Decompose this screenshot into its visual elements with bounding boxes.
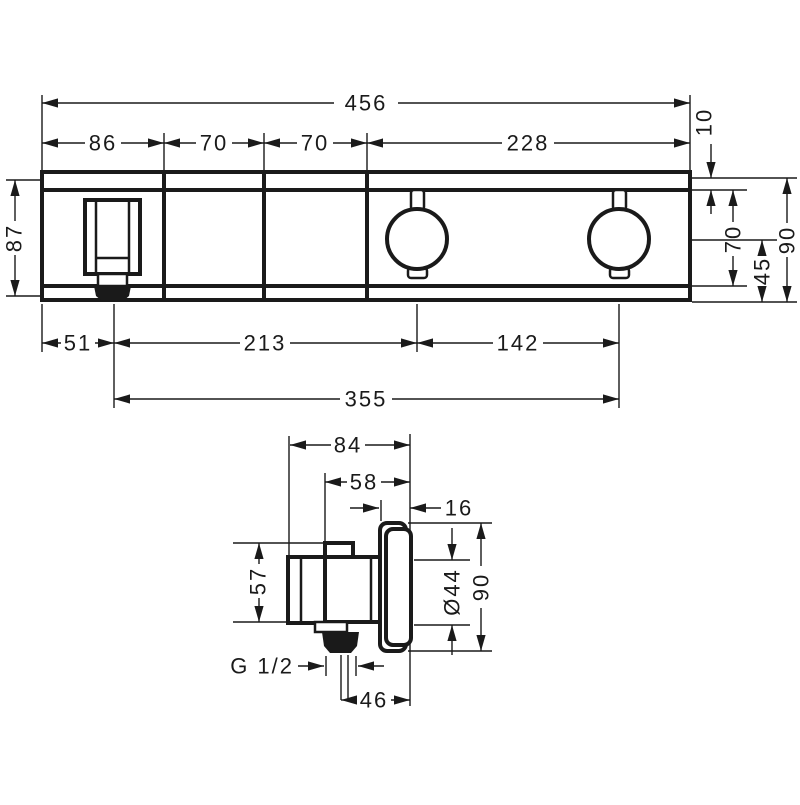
dim-segment-holder: 86 xyxy=(89,131,117,156)
dim-top-edge-offset: 10 xyxy=(692,108,717,136)
dim-knob-diameter: Ø44 xyxy=(440,568,465,616)
dim-segment-gap2: 70 xyxy=(301,131,329,156)
holder-outlet-nut xyxy=(94,286,131,301)
dim-total-width: 456 xyxy=(345,91,388,116)
dim-holder-to-knob1: 213 xyxy=(244,331,287,356)
spec-sheet-page: 456 86 70 70 228 10 87 70 45 90 51 213 1… xyxy=(0,0,800,800)
dim-plate-height: 90 xyxy=(469,573,494,601)
dim-edge-to-holder: 51 xyxy=(64,331,92,356)
dim-segment-gap1: 70 xyxy=(200,131,228,156)
dim-outlet-to-front: 46 xyxy=(360,688,388,713)
dim-total-depth: 84 xyxy=(334,433,362,458)
side-view: 84 58 16 57 Ø44 90 G 1/2 46 xyxy=(230,433,493,713)
dim-body-height-left: 87 xyxy=(2,224,27,252)
label-thread-size: G 1/2 xyxy=(230,654,294,679)
thread-connector-nut xyxy=(322,632,359,653)
dim-plate-depth: 16 xyxy=(445,496,473,521)
side-body-profile xyxy=(288,543,380,653)
technical-drawing: 456 86 70 70 228 10 87 70 45 90 51 213 1… xyxy=(0,0,800,800)
dim-holder-to-knob2-total: 355 xyxy=(345,387,388,412)
dim-body-depth: 58 xyxy=(350,470,378,495)
dim-segment-knobs: 228 xyxy=(507,131,550,156)
dim-half-height: 45 xyxy=(750,257,775,285)
escutcheon-plates xyxy=(380,523,411,651)
front-view: 456 86 70 70 228 10 87 70 45 90 51 213 1… xyxy=(2,91,800,412)
thermostat-knob-2 xyxy=(589,190,649,278)
thermostat-knob-1 xyxy=(387,190,447,278)
dim-knob1-to-knob2: 142 xyxy=(497,331,540,356)
front-dimension-lines-bottom xyxy=(42,304,619,408)
dim-faceplate-height: 70 xyxy=(721,225,746,253)
dim-side-body-height: 57 xyxy=(246,567,271,595)
dim-total-height: 90 xyxy=(775,226,800,254)
